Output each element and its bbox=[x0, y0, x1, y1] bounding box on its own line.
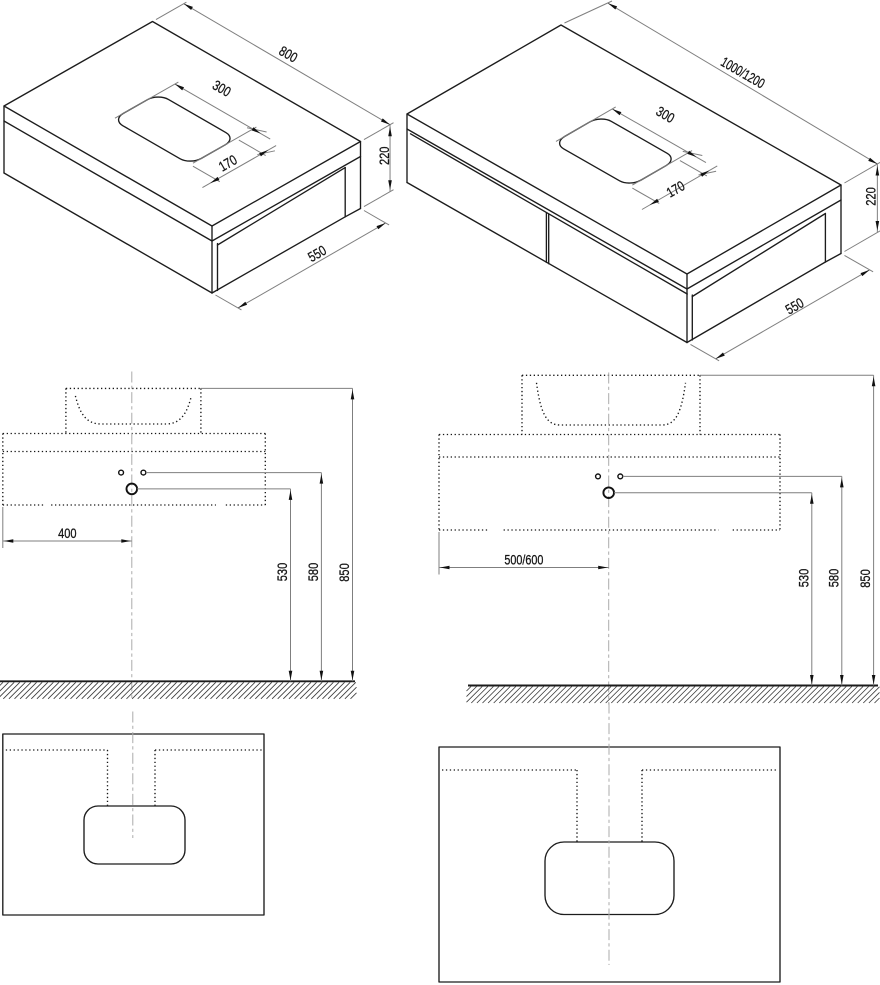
svg-text:220: 220 bbox=[862, 187, 878, 206]
svg-text:530: 530 bbox=[274, 563, 290, 582]
svg-text:850: 850 bbox=[336, 563, 352, 582]
svg-text:500/600: 500/600 bbox=[504, 551, 543, 567]
svg-text:400: 400 bbox=[58, 525, 77, 541]
svg-text:850: 850 bbox=[857, 569, 873, 588]
svg-text:580: 580 bbox=[305, 563, 321, 582]
svg-text:580: 580 bbox=[825, 569, 841, 588]
svg-text:220: 220 bbox=[376, 146, 392, 165]
svg-text:530: 530 bbox=[795, 569, 811, 588]
